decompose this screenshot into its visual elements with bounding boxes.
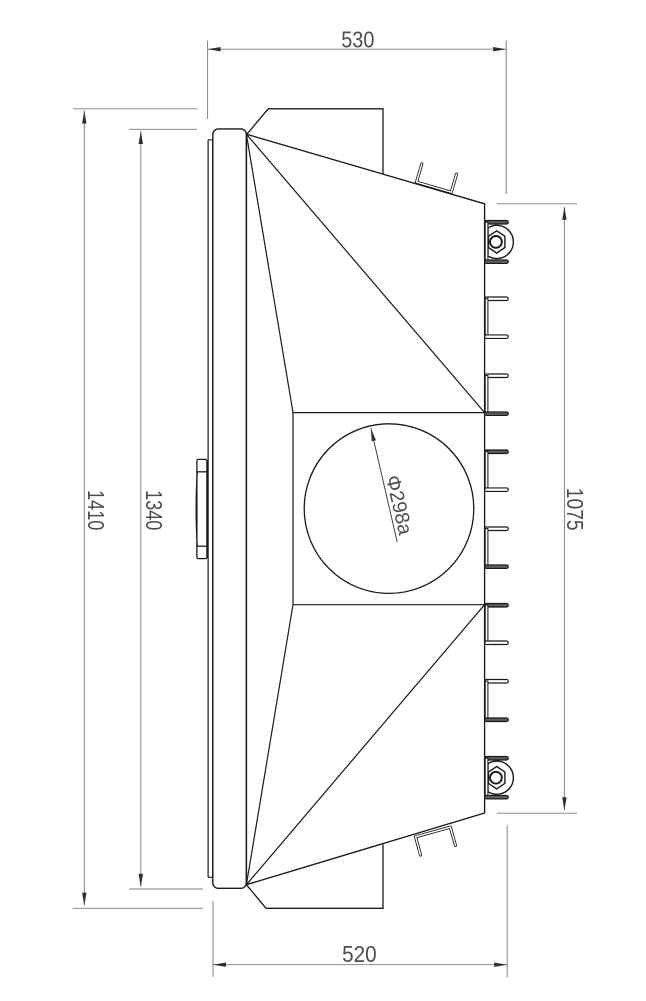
svg-text:1075: 1075	[562, 488, 587, 531]
svg-text:520: 520	[342, 941, 377, 967]
svg-text:1340: 1340	[141, 490, 167, 530]
svg-text:1410: 1410	[82, 490, 108, 530]
svg-text:530: 530	[341, 27, 374, 53]
